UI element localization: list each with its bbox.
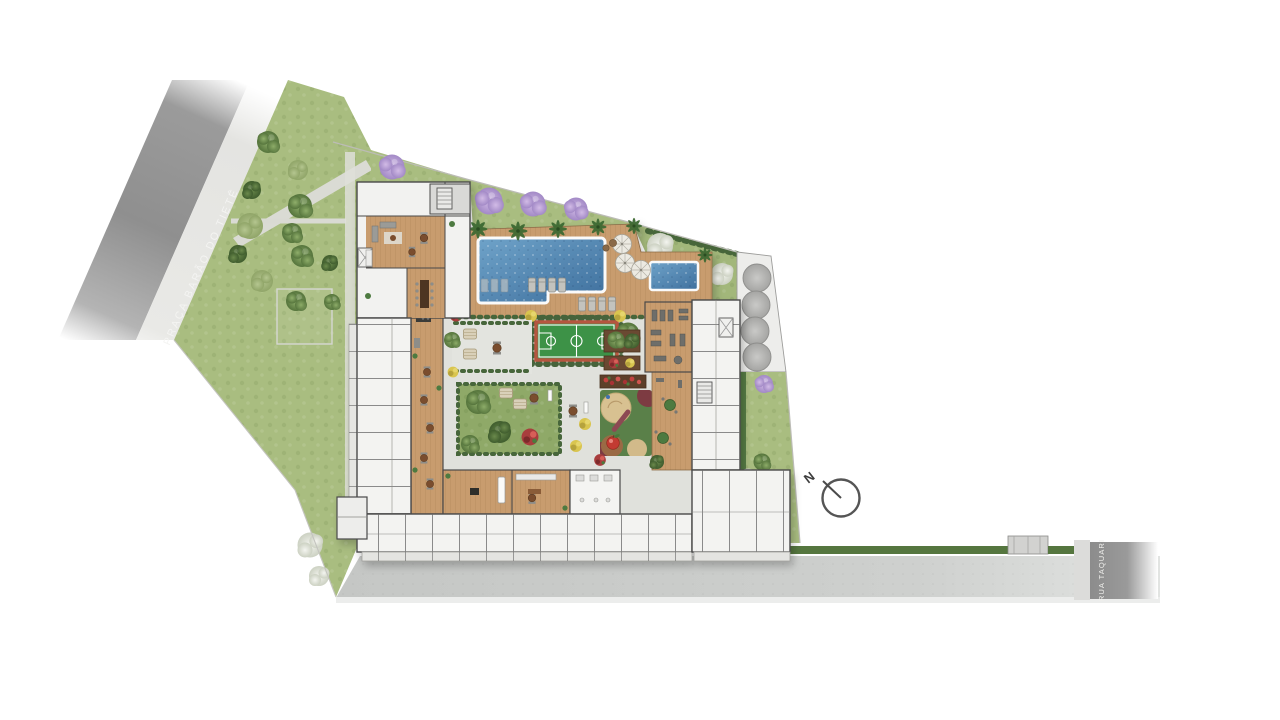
building — [337, 182, 790, 561]
sand-circle-2 — [627, 439, 647, 459]
grill-counter — [548, 390, 552, 401]
site-plan: PRAÇA BARÃO DO TIETÊ — [0, 0, 1280, 720]
massage-table — [498, 477, 505, 503]
sand-circle — [601, 393, 631, 423]
site-plan-canvas: PRAÇA BARÃO DO TIETÊ — [0, 0, 1280, 720]
fitness-item — [678, 380, 682, 388]
grill-counter — [584, 402, 588, 413]
meeting-table — [470, 488, 479, 495]
left-apartments-wing — [349, 318, 411, 514]
rattan-chair — [603, 245, 609, 251]
garden-table — [665, 400, 676, 411]
in-pool-loungers — [481, 279, 508, 292]
shelf — [414, 338, 420, 348]
compass-north-label: N — [801, 469, 818, 487]
bottom-amenity-rooms — [443, 470, 620, 514]
plant-pot — [412, 353, 417, 358]
lobby-block — [357, 182, 470, 318]
southeast-apartments-block — [692, 470, 790, 561]
courtyard-planters — [604, 330, 640, 370]
compass: N — [801, 469, 860, 517]
garden-table — [658, 433, 669, 444]
left-lounge-strip — [411, 302, 443, 514]
curb — [336, 597, 1160, 603]
kitchen-counter — [516, 474, 556, 480]
kitchen-island — [528, 489, 541, 494]
street-right-label: RUA TAQUARI — [1097, 539, 1106, 601]
balconies-southeast — [694, 552, 790, 561]
street-right-sidewalk — [1074, 540, 1090, 600]
gym — [645, 302, 692, 372]
plant-pot — [412, 467, 417, 472]
street-right: RUA TAQUARI — [1074, 539, 1158, 601]
rattan-chair — [609, 239, 616, 246]
water-tanks-area — [737, 252, 786, 372]
entrance-lobby — [337, 497, 367, 539]
right-apartments-wing — [692, 300, 740, 470]
plant-pot — [436, 385, 441, 390]
fitness-item — [656, 378, 664, 382]
outdoor-lounge-deck — [649, 372, 692, 470]
